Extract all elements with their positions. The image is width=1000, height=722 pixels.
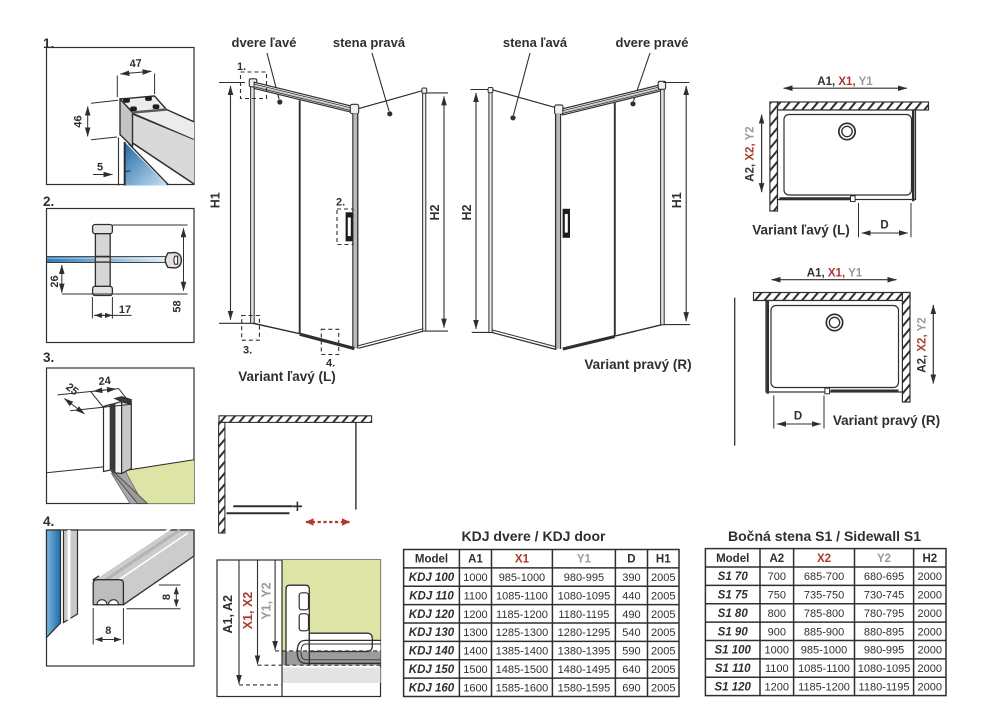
- svg-text:2005: 2005: [651, 664, 675, 676]
- svg-text:1200: 1200: [765, 681, 789, 693]
- svg-text:1580-1595: 1580-1595: [558, 682, 611, 694]
- svg-text:Model: Model: [415, 554, 448, 566]
- svg-text:KDJ 160: KDJ 160: [409, 682, 455, 694]
- svg-text:A1, X1, Y1: A1, X1, Y1: [817, 76, 873, 88]
- svg-text:700: 700: [768, 571, 786, 583]
- svg-text:1180-1195: 1180-1195: [859, 681, 910, 693]
- svg-text:1080-1095: 1080-1095: [558, 590, 611, 602]
- svg-text:1080-1095: 1080-1095: [858, 663, 911, 675]
- svg-text:2.: 2.: [43, 194, 54, 209]
- svg-text:490: 490: [622, 609, 640, 621]
- svg-text:900: 900: [768, 626, 786, 638]
- svg-text:S1 80: S1 80: [718, 608, 749, 620]
- svg-text:1.: 1.: [43, 36, 54, 51]
- svg-text:2000: 2000: [918, 663, 942, 675]
- svg-text:1100: 1100: [765, 663, 789, 675]
- svg-text:KDJ dvere / KDJ door: KDJ dvere / KDJ door: [462, 528, 606, 544]
- svg-text:S1 70: S1 70: [718, 571, 749, 583]
- svg-text:H1: H1: [656, 554, 671, 566]
- svg-text:2005: 2005: [651, 646, 675, 658]
- svg-text:980-995: 980-995: [564, 572, 604, 584]
- svg-text:A2, X2, Y2: A2, X2, Y2: [745, 126, 757, 181]
- svg-text:1085-1100: 1085-1100: [798, 663, 850, 675]
- svg-text:2000: 2000: [918, 571, 942, 583]
- svg-text:S1 120: S1 120: [714, 681, 751, 693]
- svg-text:2005: 2005: [651, 609, 675, 621]
- svg-text:780-795: 780-795: [864, 608, 904, 620]
- svg-text:8: 8: [161, 594, 173, 600]
- svg-text:Bočná stena S1 / Sidewall S1: Bočná stena S1 / Sidewall S1: [728, 528, 921, 544]
- svg-text:1185-1200: 1185-1200: [798, 681, 850, 693]
- svg-text:KDJ 150: KDJ 150: [409, 664, 455, 676]
- svg-text:H2: H2: [922, 553, 937, 565]
- svg-text:S1 75: S1 75: [718, 590, 749, 602]
- svg-text:Variant pravý (R): Variant pravý (R): [833, 413, 940, 428]
- svg-text:Y1, Y2: Y1, Y2: [259, 582, 273, 619]
- svg-text:stena ľavá: stena ľavá: [503, 35, 568, 50]
- svg-text:390: 390: [622, 572, 640, 584]
- svg-text:1400: 1400: [463, 646, 487, 658]
- svg-text:Variant pravý (R): Variant pravý (R): [584, 357, 691, 372]
- svg-text:1585-1600: 1585-1600: [496, 682, 549, 694]
- svg-text:590: 590: [622, 646, 640, 658]
- svg-text:985-1000: 985-1000: [499, 572, 546, 584]
- svg-text:3.: 3.: [43, 350, 54, 365]
- svg-text:Variant ľavý (L): Variant ľavý (L): [752, 223, 850, 238]
- svg-text:690: 690: [622, 682, 640, 694]
- svg-text:1180-1195: 1180-1195: [558, 609, 609, 621]
- svg-text:H1: H1: [209, 192, 223, 208]
- svg-text:2005: 2005: [651, 590, 675, 602]
- svg-text:2005: 2005: [651, 627, 675, 639]
- svg-text:440: 440: [622, 590, 640, 602]
- svg-text:58: 58: [172, 300, 184, 312]
- svg-text:735-750: 735-750: [804, 590, 844, 602]
- svg-text:4.: 4.: [326, 358, 335, 370]
- svg-text:2000: 2000: [918, 608, 942, 620]
- svg-text:17: 17: [119, 304, 131, 316]
- svg-text:dvere pravé: dvere pravé: [616, 35, 689, 50]
- svg-text:H2: H2: [428, 204, 442, 220]
- svg-text:1280-1295: 1280-1295: [558, 627, 611, 639]
- svg-text:980-995: 980-995: [864, 645, 904, 657]
- svg-text:Y2: Y2: [877, 553, 891, 565]
- svg-text:4.: 4.: [43, 514, 54, 529]
- svg-text:D: D: [794, 411, 802, 423]
- svg-text:2000: 2000: [918, 681, 942, 693]
- svg-text:2005: 2005: [651, 682, 675, 694]
- svg-text:785-800: 785-800: [804, 608, 844, 620]
- svg-text:S1 110: S1 110: [715, 663, 751, 675]
- svg-text:2000: 2000: [918, 590, 942, 602]
- svg-text:stena pravá: stena pravá: [333, 35, 406, 50]
- svg-text:1.: 1.: [237, 61, 246, 73]
- svg-text:A2: A2: [769, 553, 784, 565]
- svg-text:1480-1495: 1480-1495: [558, 664, 611, 676]
- svg-text:2000: 2000: [918, 645, 942, 657]
- svg-text:1000: 1000: [463, 572, 487, 584]
- svg-text:Y1: Y1: [577, 554, 592, 566]
- svg-text:985-1000: 985-1000: [801, 645, 848, 657]
- svg-text:X2: X2: [817, 553, 831, 565]
- svg-text:540: 540: [622, 627, 640, 639]
- svg-text:Model: Model: [716, 553, 749, 565]
- svg-text:2.: 2.: [336, 197, 345, 209]
- svg-text:2000: 2000: [918, 626, 942, 638]
- svg-text:A2, X2, Y2: A2, X2, Y2: [917, 317, 929, 372]
- svg-text:2005: 2005: [651, 572, 675, 584]
- svg-text:S1 100: S1 100: [714, 645, 751, 657]
- svg-text:26: 26: [49, 275, 61, 287]
- svg-text:KDJ 130: KDJ 130: [409, 627, 455, 639]
- svg-text:1300: 1300: [463, 627, 487, 639]
- svg-text:750: 750: [768, 590, 786, 602]
- svg-text:685-700: 685-700: [804, 571, 844, 583]
- svg-text:dvere ľavé: dvere ľavé: [232, 35, 297, 50]
- svg-text:KDJ 100: KDJ 100: [409, 572, 455, 584]
- svg-text:885-900: 885-900: [804, 626, 844, 638]
- svg-text:1100: 1100: [464, 590, 488, 602]
- svg-text:1500: 1500: [463, 664, 487, 676]
- svg-text:1085-1100: 1085-1100: [496, 590, 548, 602]
- svg-text:KDJ 140: KDJ 140: [409, 646, 455, 658]
- svg-text:5: 5: [97, 162, 103, 174]
- svg-text:1000: 1000: [765, 645, 789, 657]
- svg-text:1285-1300: 1285-1300: [496, 627, 549, 639]
- svg-text:1385-1400: 1385-1400: [496, 646, 549, 658]
- svg-text:Variant ľavý (L): Variant ľavý (L): [238, 369, 336, 384]
- svg-text:H1: H1: [670, 192, 684, 208]
- svg-text:1380-1395: 1380-1395: [558, 646, 611, 658]
- svg-text:47: 47: [129, 58, 142, 71]
- svg-text:730-745: 730-745: [864, 590, 904, 602]
- svg-text:A1: A1: [468, 554, 483, 566]
- svg-text:1200: 1200: [463, 609, 487, 621]
- svg-text:46: 46: [73, 115, 85, 127]
- svg-text:1600: 1600: [463, 682, 487, 694]
- svg-text:X1, X2: X1, X2: [241, 592, 255, 630]
- svg-text:1185-1200: 1185-1200: [496, 609, 548, 621]
- svg-text:KDJ 110: KDJ 110: [409, 590, 454, 602]
- svg-text:A1, A2: A1, A2: [221, 595, 235, 633]
- svg-text:KDJ 120: KDJ 120: [409, 609, 455, 621]
- svg-text:800: 800: [768, 608, 786, 620]
- svg-text:680-695: 680-695: [864, 571, 904, 583]
- svg-text:3.: 3.: [243, 345, 252, 357]
- svg-text:X1: X1: [515, 554, 530, 566]
- svg-text:640: 640: [622, 664, 640, 676]
- svg-text:D: D: [627, 554, 635, 566]
- svg-text:1485-1500: 1485-1500: [496, 664, 549, 676]
- svg-text:H2: H2: [460, 204, 474, 220]
- svg-text:S1 90: S1 90: [718, 626, 749, 638]
- svg-text:D: D: [880, 220, 888, 232]
- svg-text:8: 8: [105, 625, 111, 637]
- svg-text:24: 24: [98, 375, 112, 388]
- svg-text:A1, X1, Y1: A1, X1, Y1: [807, 268, 863, 280]
- svg-text:880-895: 880-895: [864, 626, 904, 638]
